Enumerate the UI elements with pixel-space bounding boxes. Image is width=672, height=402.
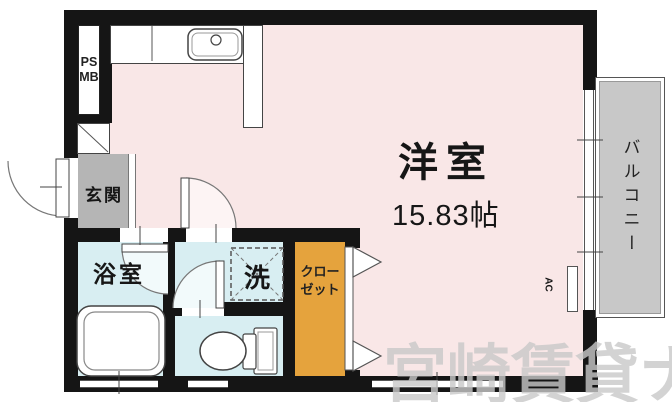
shoe-cabinet-diagonal <box>78 124 108 152</box>
washroom-door-swing <box>186 178 236 228</box>
toilet-bowl <box>200 332 246 370</box>
toilet-door-leaf <box>216 261 224 308</box>
balcony-label: バルコニー <box>618 138 643 258</box>
entrance-door-leaf <box>56 159 69 217</box>
closet-label-line2: ゼット <box>295 281 345 299</box>
entrance-door-swing <box>8 161 63 216</box>
bathroom-door-leaf <box>122 244 168 252</box>
main-room-label: 洋室 <box>398 130 494 188</box>
floor-plan: PS MB バルコニー AC <box>0 0 672 402</box>
toilet-door-swing <box>173 261 220 308</box>
watermark: 宮崎賃貸ナビ <box>383 324 672 402</box>
pipe-shaft-label-mb: MB <box>79 70 98 85</box>
closet-door-triangle-bottom <box>353 341 381 371</box>
main-room-size-label: 15.83帖 <box>392 192 500 234</box>
pipe-shaft-label-ps: PS <box>81 55 98 70</box>
toilet-tank <box>254 328 277 374</box>
bathroom-label: 浴室 <box>93 255 145 289</box>
laundry-label: 洗 <box>244 258 270 295</box>
washroom-door-leaf <box>181 178 189 228</box>
bathtub-inner <box>84 312 159 370</box>
entrance-label: 玄関 <box>85 181 123 206</box>
pipe-shaft-box: PS MB <box>78 25 100 115</box>
ac-label: AC <box>543 277 554 291</box>
closet-label-line1: クロー <box>295 263 345 281</box>
closet-door-panel <box>345 247 353 370</box>
closet-label: クロー ゼット <box>295 263 345 299</box>
closet-door-triangle-top <box>353 247 381 277</box>
sink-drain <box>211 35 221 45</box>
